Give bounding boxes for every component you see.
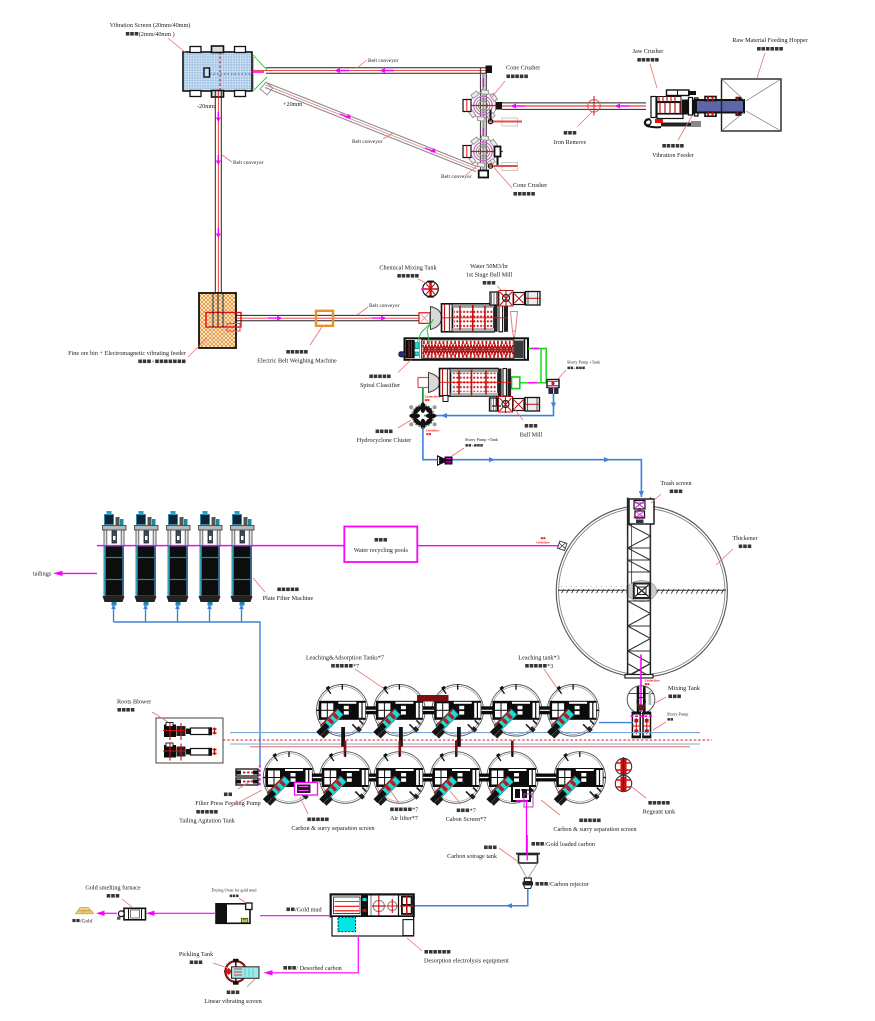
svg-text:■■: ■■ [224, 790, 233, 799]
svg-text:■■■■■: ■■■■■ [277, 585, 300, 594]
svg-text:■■■■■*7: ■■■■■*7 [331, 661, 360, 670]
svg-text:Slurry Pump: Slurry Pump [667, 712, 688, 717]
svg-text:Slurry Pump +Tank: Slurry Pump +Tank [567, 360, 601, 365]
svg-text:■■■*7: ■■■*7 [456, 806, 476, 815]
svg-text:■■■: ■■■ [484, 843, 498, 852]
svg-text:■■■■■*3: ■■■■■*3 [525, 661, 554, 670]
svg-text:Belt conveyor: Belt conveyor [368, 58, 399, 64]
svg-text:Linear vibrating screen: Linear vibrating screen [204, 998, 261, 1005]
svg-text:Spiral Classifier: Spiral Classifier [360, 382, 400, 389]
svg-text:Slurry Pump +Tank: Slurry Pump +Tank [465, 437, 499, 442]
svg-text:■■■/ Desorbed carbon: ■■■/ Desorbed carbon [283, 963, 342, 972]
svg-text:Belt conveyor: Belt conveyor [233, 160, 264, 166]
svg-text:■■: ■■ [426, 431, 432, 436]
svg-text:■■■: ■■■ [524, 421, 538, 430]
svg-text:■■■: ■■■ [189, 958, 203, 967]
svg-text:Plate Filter Machine: Plate Filter Machine [263, 595, 314, 602]
svg-text:Desorption electrolysis equipm: Desorption electrolysis equipment [424, 958, 509, 965]
svg-text:Regeant tank: Regeant tank [643, 809, 676, 816]
svg-text:■■■■■: ■■■■■ [286, 347, 309, 356]
svg-text:■■■(2mm/40mm ): ■■■(2mm/40mm ) [125, 29, 174, 38]
svg-text:Drying Oven for gold mud: Drying Oven for gold mud [212, 888, 258, 893]
svg-text:Cabon Screen*7: Cabon Screen*7 [446, 816, 487, 823]
svg-text:■■■■: ■■■■ [375, 427, 393, 436]
svg-text:■■■■■*7: ■■■■■*7 [390, 805, 419, 814]
svg-text:■■■■■: ■■■■■ [648, 798, 671, 807]
svg-text:■■■■■: ■■■■■ [506, 72, 529, 81]
svg-text:■■■■■: ■■■■■ [513, 189, 536, 198]
svg-text:Overflow: Overflow [536, 541, 550, 545]
svg-text:Belt conveyor: Belt conveyor [352, 139, 383, 145]
svg-text:Tailing Agitation Tank: Tailing Agitation Tank [179, 818, 236, 825]
svg-text:■■■■■: ■■■■■ [397, 271, 420, 280]
svg-text:■■■■■: ■■■■■ [662, 141, 685, 150]
svg-text:■■: ■■ [425, 397, 431, 402]
svg-text:Raw Material Feeding Hopper: Raw Material Feeding Hopper [732, 37, 807, 44]
svg-text:■■■: ■■■ [482, 278, 496, 287]
svg-text:Jaw Crusher: Jaw Crusher [633, 48, 664, 55]
svg-text:■■■: ■■■ [226, 988, 240, 997]
svg-text:■■■■■: ■■■■■ [196, 807, 219, 816]
svg-text:Iron Remove: Iron Remove [554, 139, 587, 146]
svg-text:■■■■: ■■■■ [117, 705, 135, 714]
svg-text:■■■■■: ■■■■■ [307, 815, 330, 824]
svg-text:Cone Crusher: Cone Crusher [513, 182, 547, 189]
svg-text:-20mm: -20mm [197, 103, 215, 110]
svg-text:■■: ■■ [645, 681, 651, 686]
svg-text:Air lifter*7: Air lifter*7 [390, 815, 418, 822]
svg-text:■■■: ■■■ [738, 542, 752, 551]
svg-text:Cone Crusher: Cone Crusher [506, 65, 540, 72]
svg-text:■■: ■■ [667, 717, 673, 723]
svg-text:Hydrocyclone Cluster: Hydrocyclone Cluster [357, 437, 411, 444]
svg-text:Filter Press Feeding Pump: Filter Press Feeding Pump [195, 800, 261, 807]
svg-text:Water recycling pools: Water recycling pools [354, 547, 409, 554]
svg-text:■■■/Gold loaded carbon: ■■■/Gold loaded carbon [531, 839, 595, 848]
svg-text:■■■: ■■■ [668, 692, 682, 701]
svg-text:■■■: ■■■ [374, 535, 388, 544]
svg-text:■■■: ■■■ [563, 128, 577, 137]
svg-text:■■/Gold: ■■/Gold [72, 918, 93, 925]
svg-text:tailings: tailings [33, 571, 52, 578]
svg-text:■■■■■: ■■■■■ [637, 55, 660, 64]
svg-text:Belt conveyor: Belt conveyor [441, 174, 472, 180]
svg-text:■■■: ■■■ [229, 894, 238, 900]
svg-text:+20mm: +20mm [283, 101, 302, 108]
svg-text:■■■■■: ■■■■■ [579, 816, 602, 825]
svg-text:Carbon & surry separation scre: Carbon & surry separation screen [291, 825, 374, 832]
svg-text:■■■: ■■■ [669, 487, 683, 496]
svg-text:■■■■■■: ■■■■■■ [757, 44, 784, 53]
svg-text:■■■■■■: ■■■■■■ [424, 947, 451, 956]
svg-text:■■■: ■■■ [106, 891, 120, 900]
svg-text:■■■+■■■■■■■: ■■■+■■■■■■■ [138, 357, 187, 366]
svg-text:Carbon & surry separation scre: Carbon & surry separation screen [553, 826, 636, 833]
svg-text:Carbon sotrage tank: Carbon sotrage tank [447, 853, 498, 860]
svg-text:■■+■■■: ■■+■■■ [465, 443, 483, 449]
svg-text:■■+■■■: ■■+■■■ [567, 366, 585, 372]
svg-text:Electric Belt Weighing Machine: Electric Belt Weighing Machine [257, 358, 337, 365]
svg-text:Vibration Feeder: Vibration Feeder [652, 152, 694, 159]
svg-text:■■■/Carbon rejector: ■■■/Carbon rejector [535, 879, 589, 888]
svg-text:Ball Mill: Ball Mill [520, 432, 543, 439]
svg-text:Water 50M3/hr: Water 50M3/hr [470, 263, 508, 270]
svg-text:Belt conveyor: Belt conveyor [369, 303, 400, 309]
svg-text:■■■■■: ■■■■■ [369, 372, 392, 381]
svg-text:Vibration Screen (20mm/40mm): Vibration Screen (20mm/40mm) [110, 22, 191, 29]
svg-text:■■/Gold mud: ■■/Gold mud [286, 905, 322, 914]
